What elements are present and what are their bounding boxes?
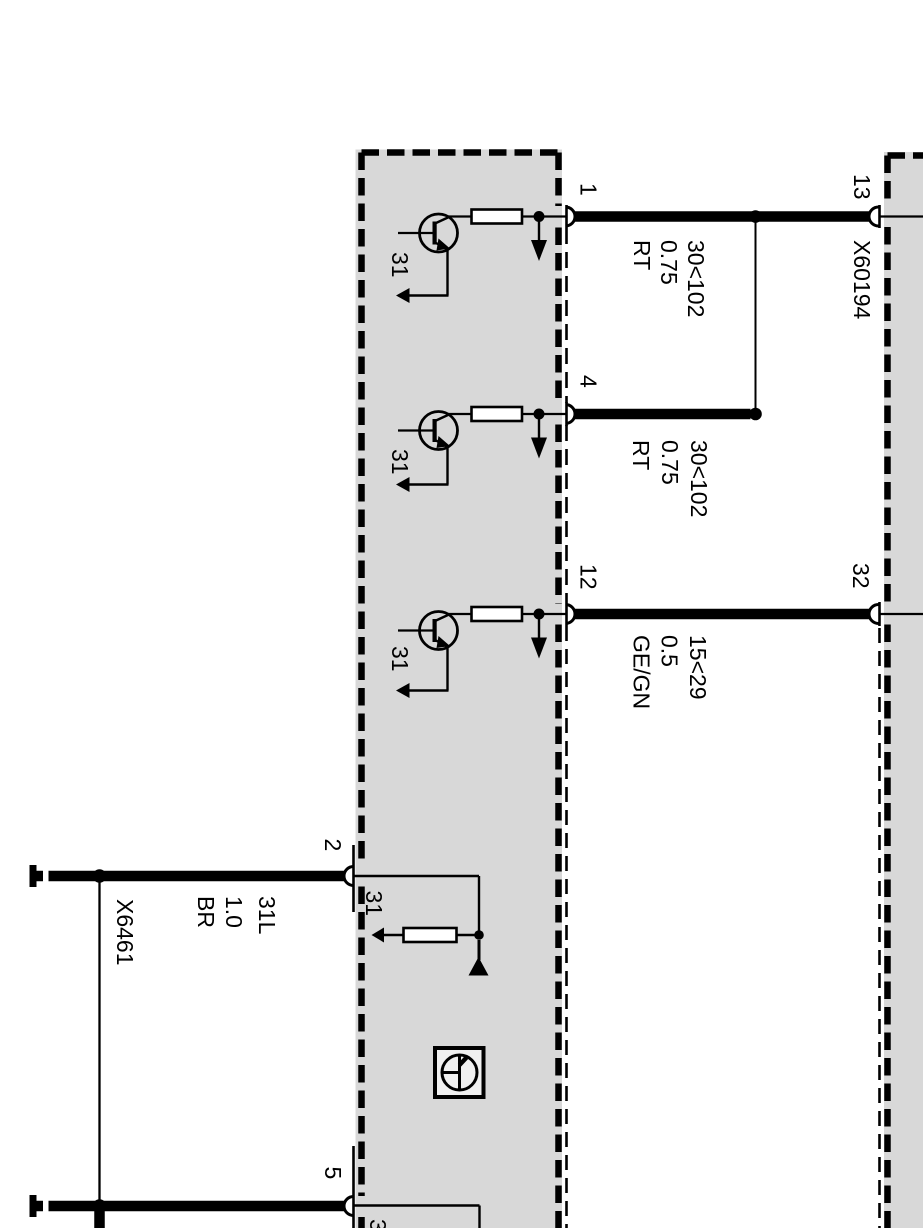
svg-text:BR: BR xyxy=(193,896,219,928)
svg-text:31: 31 xyxy=(361,891,387,917)
svg-text:0.75: 0.75 xyxy=(656,240,682,285)
svg-text:5: 5 xyxy=(320,1167,346,1180)
svg-text:12: 12 xyxy=(576,564,602,590)
svg-text:0.75: 0.75 xyxy=(657,440,683,485)
svg-text:X6461: X6461 xyxy=(112,899,138,966)
svg-text:GE/GN: GE/GN xyxy=(629,635,655,709)
svg-text:RT: RT xyxy=(628,440,654,470)
svg-text:13: 13 xyxy=(849,174,875,200)
svg-text:30<102: 30<102 xyxy=(686,440,712,517)
svg-text:1.0: 1.0 xyxy=(221,896,247,928)
svg-text:31: 31 xyxy=(387,252,413,278)
svg-text:2: 2 xyxy=(320,839,346,852)
svg-text:0.5: 0.5 xyxy=(657,635,683,667)
svg-text:RT: RT xyxy=(629,240,655,270)
svg-text:3: 3 xyxy=(365,1219,391,1228)
svg-text:4: 4 xyxy=(576,375,602,388)
svg-text:30<102: 30<102 xyxy=(683,240,709,317)
svg-text:32: 32 xyxy=(848,563,874,589)
svg-text:31: 31 xyxy=(387,646,413,672)
svg-text:X60194: X60194 xyxy=(849,240,875,320)
svg-text:1: 1 xyxy=(576,183,602,196)
svg-text:31: 31 xyxy=(387,449,413,475)
svg-text:31L: 31L xyxy=(254,896,280,935)
svg-text:15<29: 15<29 xyxy=(685,635,711,700)
